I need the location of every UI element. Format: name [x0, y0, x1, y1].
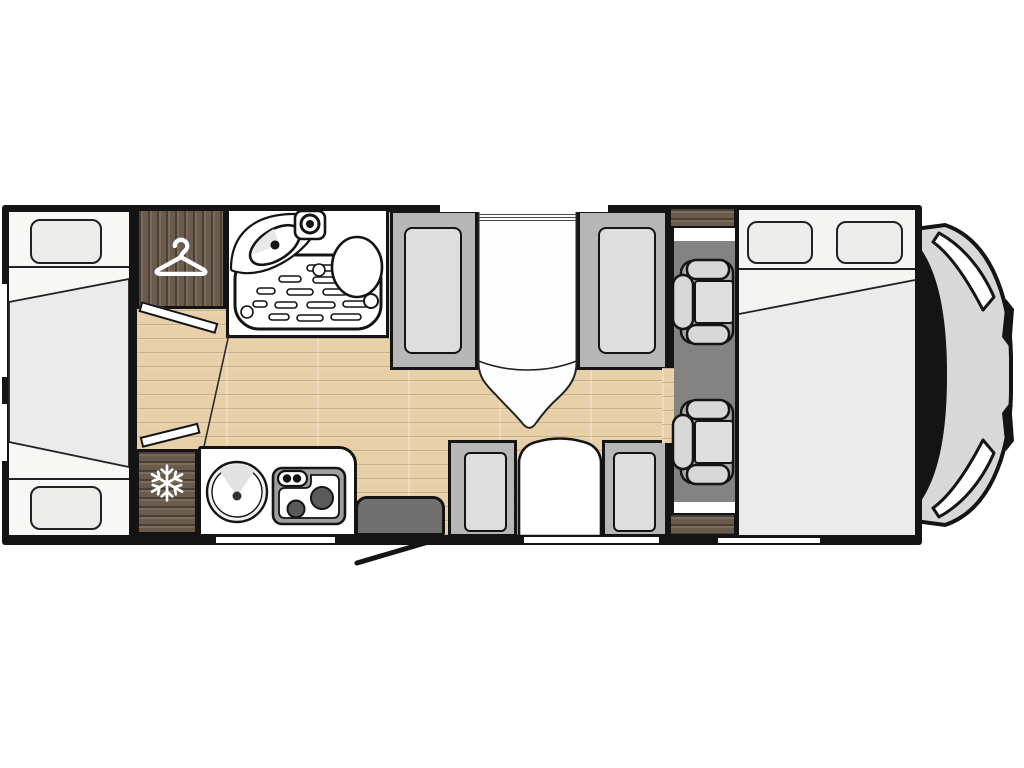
armrest — [687, 325, 729, 344]
wardrobe — [136, 208, 226, 309]
rear-window — [1, 404, 7, 461]
side-table — [516, 435, 604, 537]
seat-squab — [695, 421, 733, 463]
front-bed-pillow — [747, 221, 813, 264]
rear-bed-pillow-bottom — [30, 486, 102, 530]
cab-ledge — [674, 228, 735, 241]
side-seat-left — [448, 440, 517, 537]
toilet — [332, 237, 382, 297]
cab-cabinet-top — [669, 207, 736, 228]
dinette-bench-left — [390, 210, 478, 370]
floorplan-canvas — [0, 0, 1024, 768]
window-sill-line — [479, 220, 576, 221]
side-seat-right — [602, 440, 672, 537]
dinette-table — [477, 211, 578, 439]
kitchen-hob — [271, 466, 347, 526]
rear-bed-pillow-top — [30, 219, 102, 264]
rear-window — [1, 284, 7, 377]
entry-step — [355, 496, 445, 536]
bench-cushion — [598, 227, 656, 354]
floor-partition-line — [196, 332, 236, 454]
front-bed-mattress — [739, 272, 915, 535]
toilet-flush — [364, 294, 378, 308]
cab-seat — [671, 397, 739, 487]
armrest — [687, 465, 729, 484]
window-sill-line — [479, 217, 576, 218]
bed-edge-line — [9, 478, 129, 480]
burner — [311, 487, 333, 509]
window-sill-line — [479, 214, 576, 215]
armrest — [687, 260, 729, 279]
cab-cabinet-bottom — [669, 513, 736, 536]
bed-head-line — [739, 268, 915, 270]
bed-side-window — [718, 538, 820, 543]
dinette-bench-right — [577, 210, 673, 370]
seat-backrest — [673, 415, 693, 469]
hob-knobs — [278, 471, 307, 486]
door-swing-line — [350, 532, 450, 570]
shower-head — [295, 211, 325, 239]
entry-door-opening — [524, 537, 659, 543]
cab-seat — [671, 257, 739, 347]
washroom — [226, 208, 389, 338]
seat-squab — [695, 281, 733, 323]
fridge — [136, 449, 198, 535]
side-window — [440, 205, 608, 212]
hanger-icon — [150, 237, 212, 281]
kitchen-sink — [205, 460, 270, 525]
burner — [288, 501, 305, 518]
armrest — [687, 400, 729, 419]
bench-cushion — [404, 227, 462, 354]
rear-bed-infill-mattress — [9, 270, 129, 480]
kitchen-window — [216, 537, 335, 543]
bed-edge-line — [9, 266, 129, 268]
seat-backrest — [673, 275, 693, 329]
front-bed-pillow — [836, 221, 903, 264]
seat-cushion — [613, 452, 656, 532]
seat-cushion — [464, 452, 507, 532]
snowflake-icon — [147, 463, 187, 503]
